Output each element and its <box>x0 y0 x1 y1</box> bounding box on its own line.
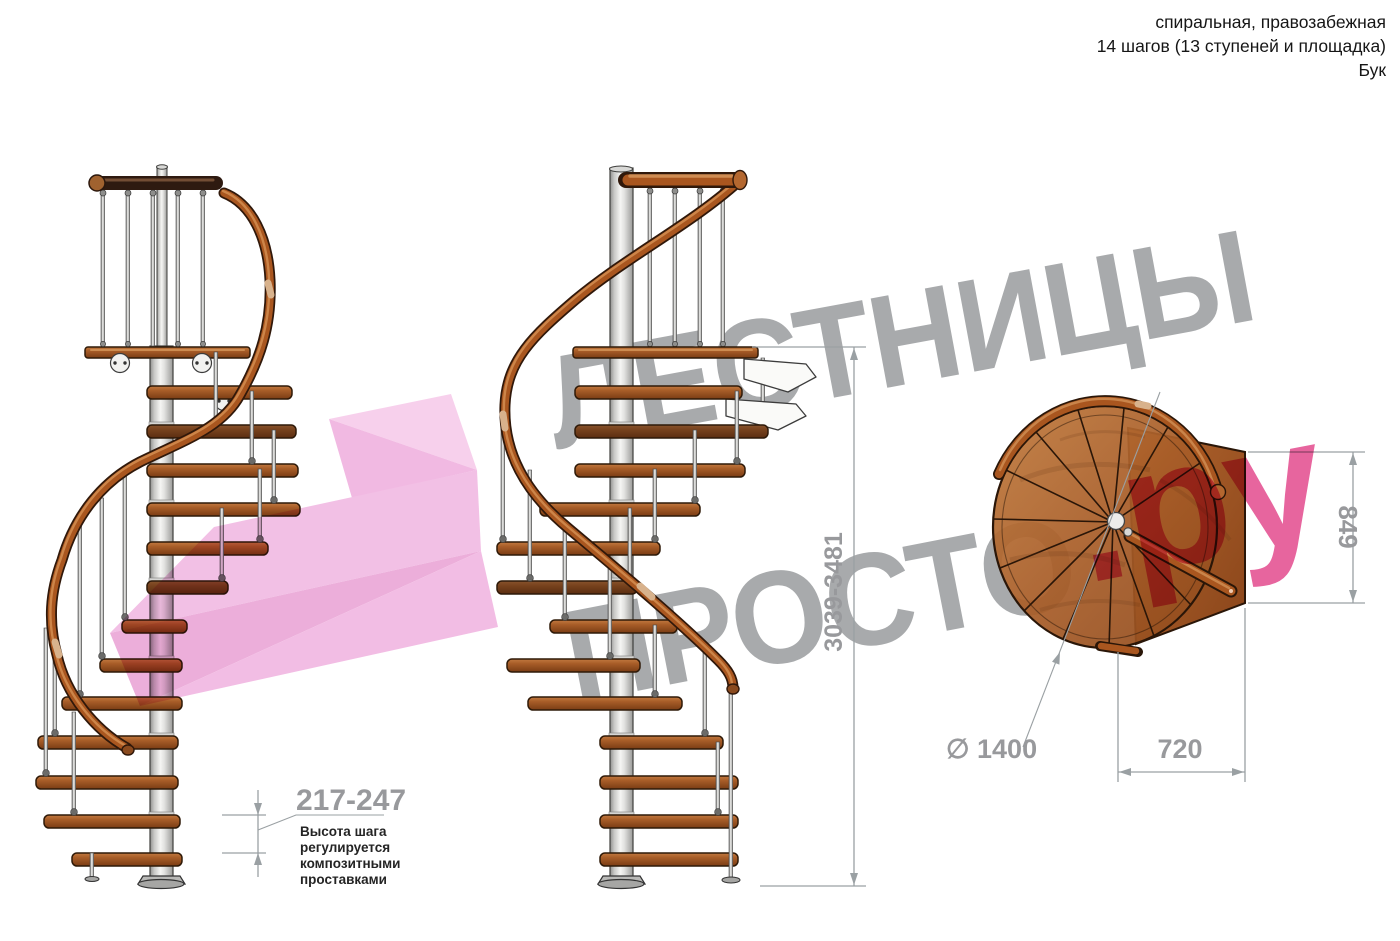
drawing-canvas: ЛЕСТНИЦЫ ПРОСТО <box>0 0 1400 941</box>
landing-plank-side <box>573 347 758 358</box>
step-height-note: Высота шага регулируется композитными пр… <box>300 824 404 887</box>
stair-type-label: спиральная, правозабежная <box>1097 10 1386 34</box>
plan-lower-rail-segment <box>1100 646 1138 652</box>
title-block: спиральная, правозабежная 14 шагов (13 с… <box>1097 10 1386 82</box>
dim-tread-run-label: 720 <box>1157 734 1202 764</box>
top-handrail <box>626 171 747 190</box>
step-count-label: 14 шагов (13 ступеней и площадка) <box>1097 34 1386 58</box>
dim-diameter-label: ∅ 1400 <box>946 734 1037 764</box>
dim-landing-depth-label: 849 <box>1333 505 1363 548</box>
landing-balustrade <box>89 175 216 347</box>
watermark-suffix-ru: .ру <box>1058 390 1339 611</box>
landing-plank <box>85 347 250 358</box>
material-label: Бук <box>1097 58 1386 82</box>
elevation-side-view <box>497 166 816 889</box>
dim-total-height-label: 3039-3481 <box>820 532 848 652</box>
dim-step-height-label: 217-247 <box>296 784 406 817</box>
